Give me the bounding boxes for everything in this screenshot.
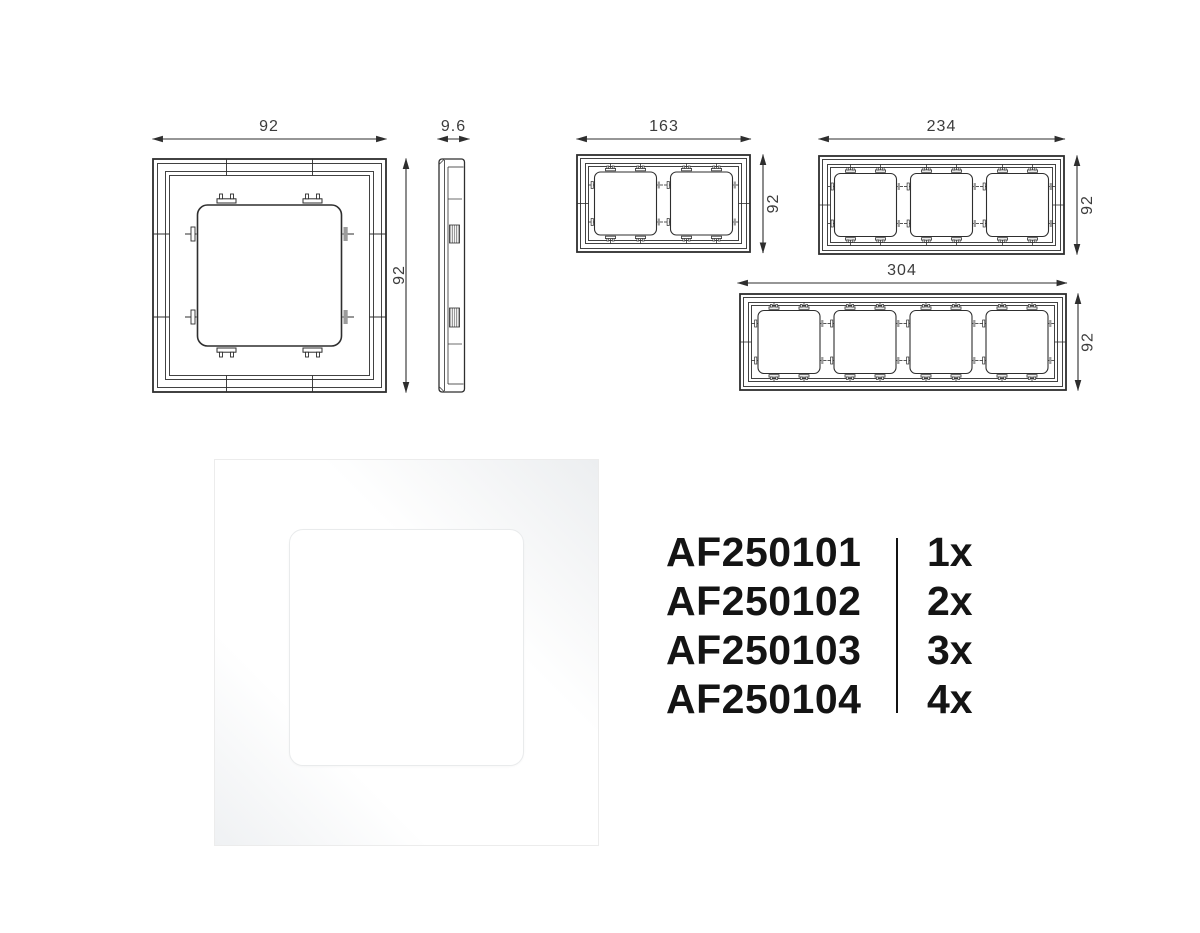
dim-label-1gang-height: 92 <box>391 265 408 285</box>
product-quantity: 2x <box>927 577 973 626</box>
product-row: AF250103 3x <box>666 626 1096 675</box>
datasheet-canvas: 92 92 9.6 <box>0 0 1200 933</box>
product-quantity: 3x <box>927 626 973 675</box>
drawing-4gang-front: 304 92 <box>730 258 1098 400</box>
dim-label-4gang-width: 304 <box>887 262 917 279</box>
product-code: AF250102 <box>666 578 861 624</box>
product-quantity: 4x <box>927 675 973 724</box>
drawing-side-profile: 9.6 <box>428 115 478 400</box>
table-divider-line <box>896 538 898 713</box>
dim-label-3gang-width: 234 <box>927 118 957 135</box>
product-code: AF250101 <box>666 529 861 575</box>
dim-label-3gang-height: 92 <box>1079 195 1096 215</box>
product-row: AF250101 1x <box>666 528 1096 577</box>
dim-label-4gang-height: 92 <box>1080 332 1097 352</box>
product-photo-1gang-frame <box>214 459 599 846</box>
product-row: AF250104 4x <box>666 675 1096 724</box>
product-code: AF250103 <box>666 627 861 673</box>
dim-label-1gang-width: 92 <box>259 118 279 135</box>
product-quantity: 1x <box>927 528 973 577</box>
product-list: AF250101 1x AF250102 2x AF250103 3x AF25… <box>666 528 1096 724</box>
drawing-3gang-front: 234 92 <box>810 115 1102 265</box>
drawing-1gang-front: 92 92 <box>150 115 422 400</box>
drawing-2gang-front: 163 92 <box>570 115 785 265</box>
dim-label-depth: 9.6 <box>441 118 466 135</box>
dim-label-2gang-width: 163 <box>649 118 679 135</box>
product-row: AF250102 2x <box>666 577 1096 626</box>
dim-label-2gang-height: 92 <box>765 194 782 214</box>
product-code: AF250104 <box>666 676 861 722</box>
photo-frame-opening <box>289 529 524 766</box>
